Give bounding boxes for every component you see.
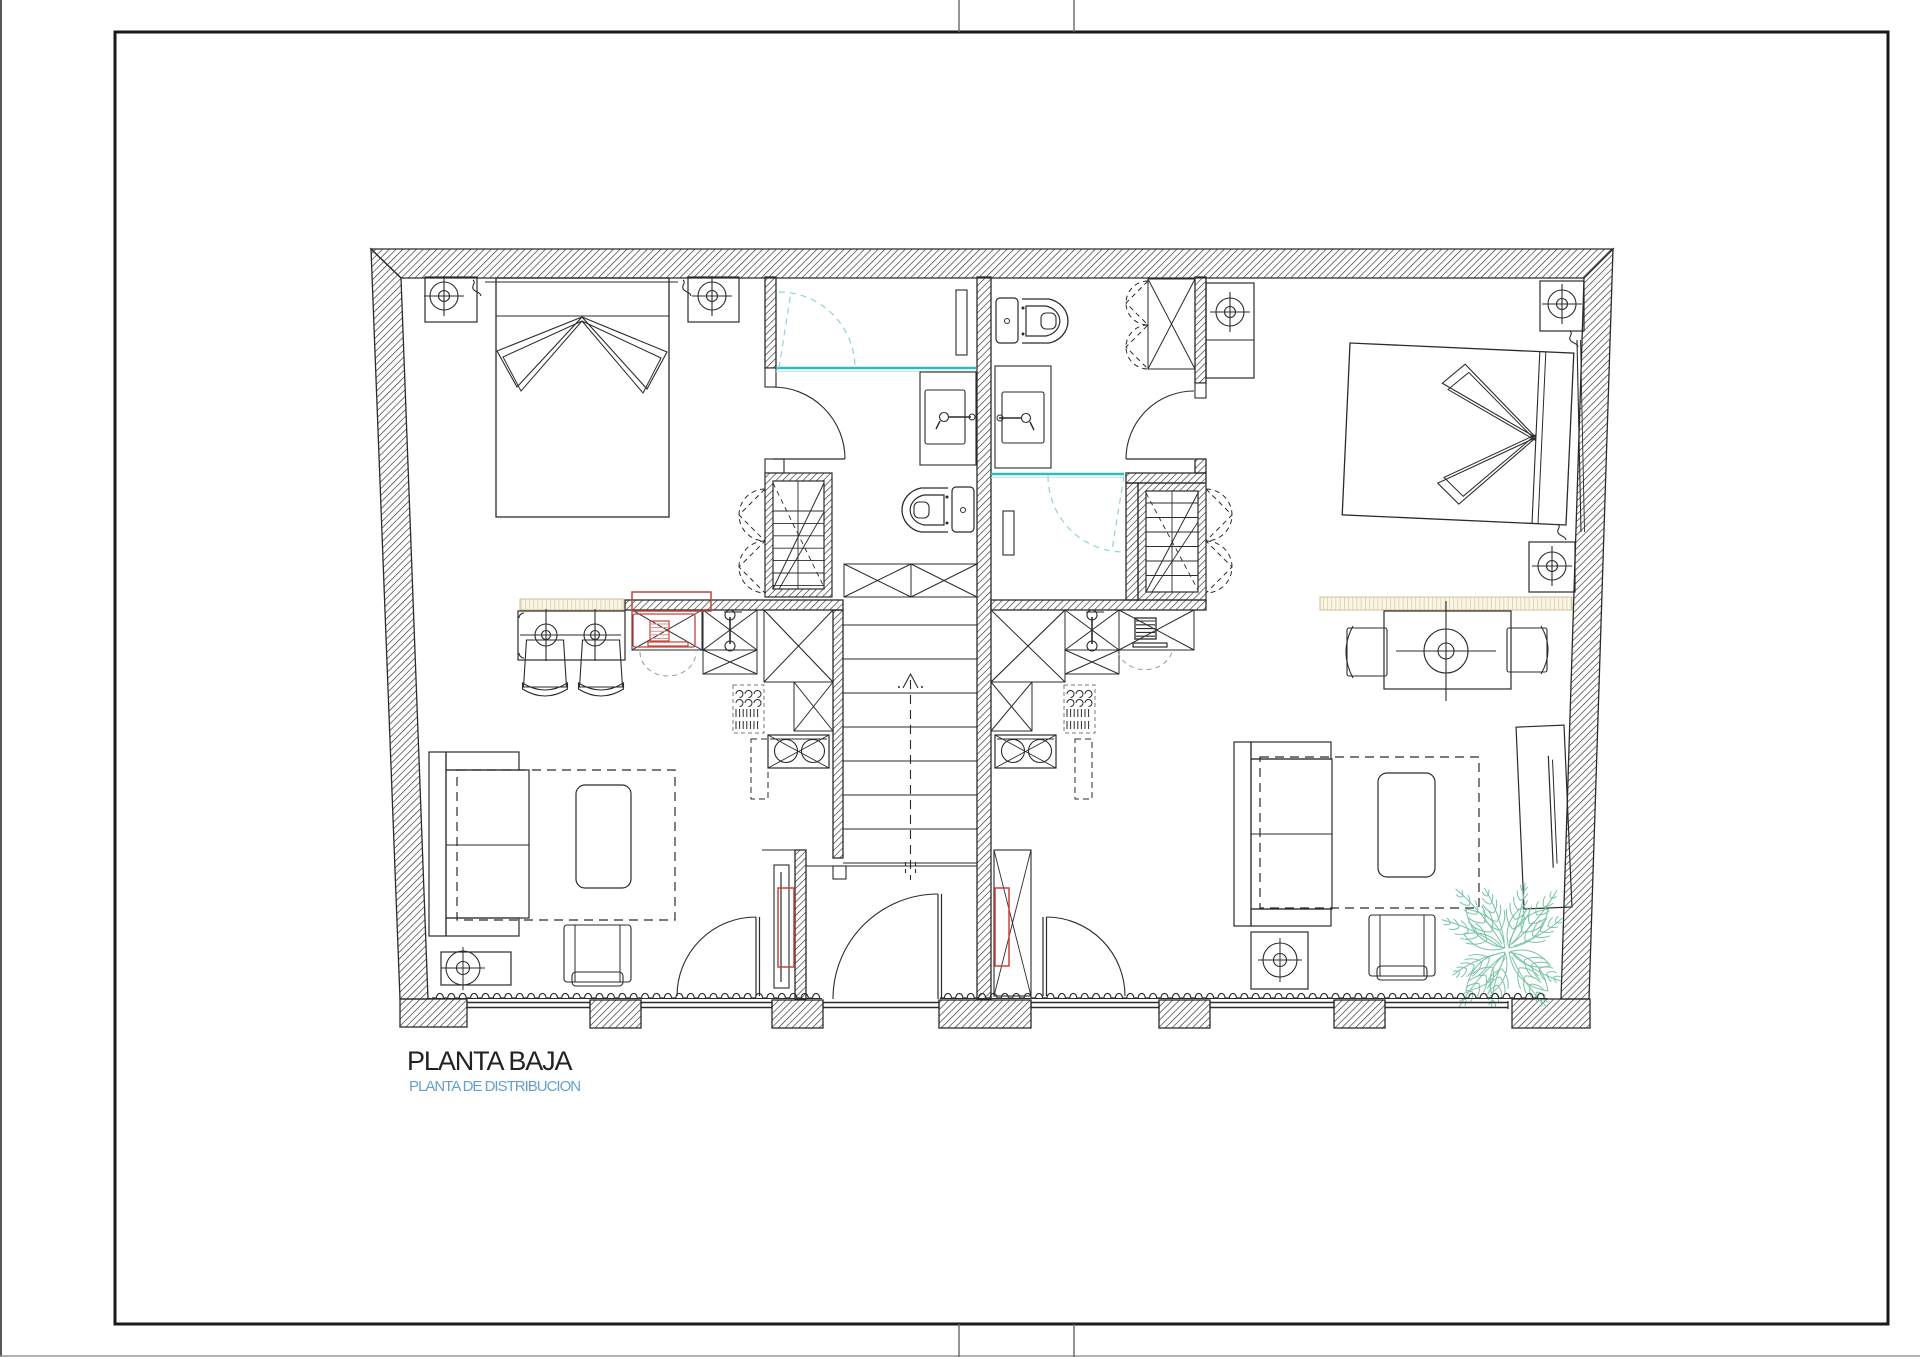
svg-text:PLANTA DE DISTRIBUCION: PLANTA DE DISTRIBUCION: [409, 1078, 580, 1095]
svg-text:PLANTA BAJA: PLANTA BAJA: [407, 1046, 573, 1076]
